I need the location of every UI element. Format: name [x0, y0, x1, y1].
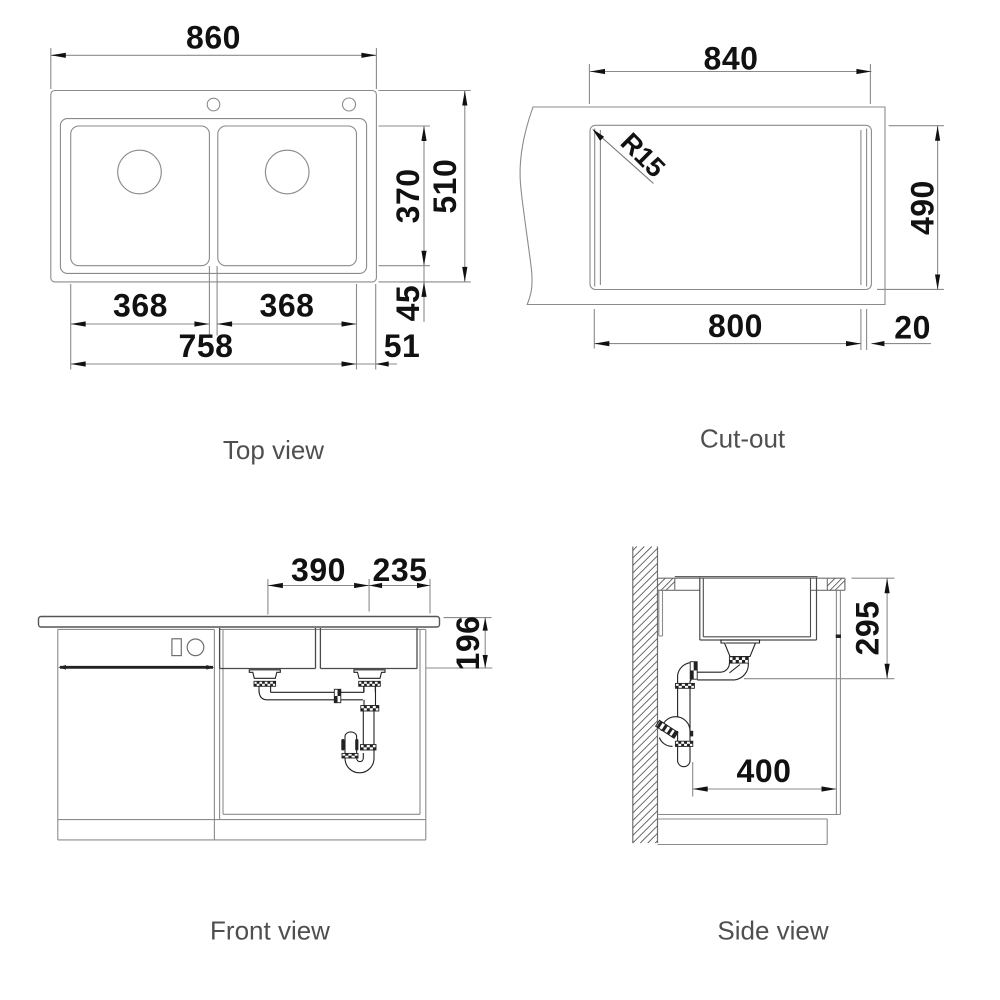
svg-text:390: 390 [291, 552, 346, 588]
svg-text:370: 370 [390, 168, 426, 223]
svg-text:51: 51 [384, 328, 421, 364]
svg-text:Front view: Front view [210, 916, 330, 946]
svg-text:368: 368 [260, 288, 315, 324]
svg-text:Cut-out: Cut-out [700, 424, 786, 454]
svg-text:758: 758 [179, 328, 234, 364]
svg-text:400: 400 [737, 753, 792, 789]
svg-text:368: 368 [113, 288, 168, 324]
svg-text:510: 510 [427, 159, 463, 214]
svg-text:860: 860 [186, 20, 241, 56]
svg-text:Side view: Side view [717, 916, 828, 946]
svg-text:235: 235 [373, 552, 428, 588]
svg-text:Top view: Top view [223, 435, 324, 465]
svg-text:840: 840 [704, 41, 759, 77]
svg-text:20: 20 [894, 310, 931, 346]
svg-text:295: 295 [850, 601, 886, 656]
svg-text:45: 45 [390, 285, 426, 322]
svg-text:490: 490 [905, 180, 941, 235]
svg-text:800: 800 [708, 308, 763, 344]
svg-text:196: 196 [450, 616, 486, 671]
